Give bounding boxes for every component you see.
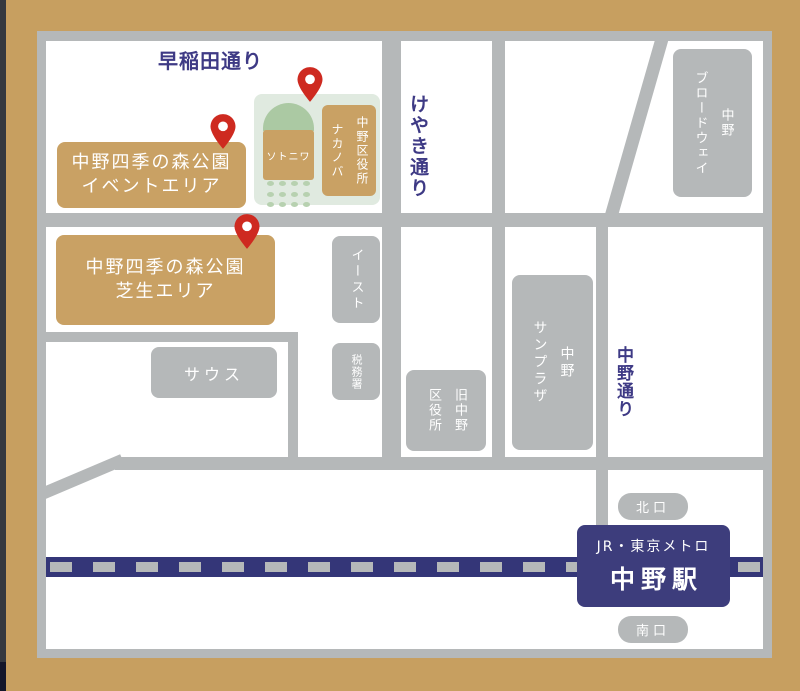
sunplaza-label-col1: 中野	[553, 346, 580, 380]
green-dot	[303, 192, 310, 197]
road-nakano-vertical	[596, 227, 608, 527]
green-dot	[267, 181, 274, 186]
green-dot	[267, 192, 274, 197]
street-label-nakano-dori: 中野通り	[612, 346, 636, 436]
road-keyaki-vertical	[382, 41, 401, 469]
park-dot-pattern	[267, 181, 315, 207]
event-area-box: 中野四季の森公園 イベントエリア	[57, 142, 246, 208]
map-canvas: 早稲田通り けやき通り 中野通り ソトニワ 中野区役所 ナカノバ 中野四季の森公…	[0, 0, 800, 691]
broadway-label-col2: ブロードウェイ	[687, 71, 713, 176]
map-pin-icon	[296, 66, 324, 103]
ward-office-label-col2: ナカノバ	[324, 123, 349, 179]
road-middle-vertical	[288, 332, 298, 463]
road-center-vertical	[492, 41, 505, 469]
sotoniwa-label: ソトニワ	[267, 148, 311, 163]
green-dot	[303, 202, 310, 207]
road-top-horizontal	[46, 213, 763, 227]
green-dot	[279, 192, 286, 197]
road-middle-horizontal	[46, 332, 298, 342]
green-dot	[303, 181, 310, 186]
green-dot	[279, 181, 286, 186]
left-edge-strip-dark	[0, 662, 6, 691]
street-label-keyaki-dori: けやき通り	[406, 94, 432, 209]
north-exit-badge: 北口	[618, 493, 688, 520]
event-area-line1: 中野四季の森公園	[72, 151, 232, 175]
south-exit-badge: 南口	[618, 616, 688, 643]
nakano-station-box: JR・東京メトロ 中野駅	[577, 525, 730, 607]
map-pin-icon	[233, 213, 261, 250]
map-pin-icon	[209, 113, 237, 150]
former-ward-office-col2: 区役所	[420, 388, 446, 433]
broadway-box: 中野 ブロードウェイ	[673, 49, 752, 197]
sotoniwa-box: ソトニワ	[263, 130, 314, 180]
station-name-label: 中野駅	[610, 560, 703, 596]
sunplaza-box: 中野 サンプラザ	[512, 275, 593, 450]
green-dot	[291, 202, 298, 207]
lawn-area-line2: 芝生エリア	[116, 280, 216, 304]
green-dot	[279, 202, 286, 207]
former-ward-office-box: 旧中野 区役所	[406, 370, 486, 451]
green-dot	[291, 192, 298, 197]
station-operator-label: JR・東京メトロ	[597, 536, 711, 556]
green-dot	[291, 181, 298, 186]
ward-office-box: 中野区役所 ナカノバ	[322, 105, 376, 196]
lawn-area-line1: 中野四季の森公園	[86, 256, 246, 280]
former-ward-office-col1: 旧中野	[446, 388, 472, 433]
green-dot	[267, 202, 274, 207]
road-lower-horizontal	[115, 457, 763, 470]
street-label-waseda-dori: 早稲田通り	[158, 45, 263, 74]
sunplaza-label-col2: サンプラザ	[526, 320, 553, 405]
tax-office-box: 税務署	[332, 343, 380, 400]
event-area-line2: イベントエリア	[82, 175, 222, 199]
ward-office-label-col1: 中野区役所	[349, 116, 374, 186]
left-edge-strip	[0, 0, 6, 691]
broadway-label-col1: 中野	[713, 108, 739, 138]
east-box: イースト	[332, 236, 380, 323]
south-box: サウス	[151, 347, 277, 398]
